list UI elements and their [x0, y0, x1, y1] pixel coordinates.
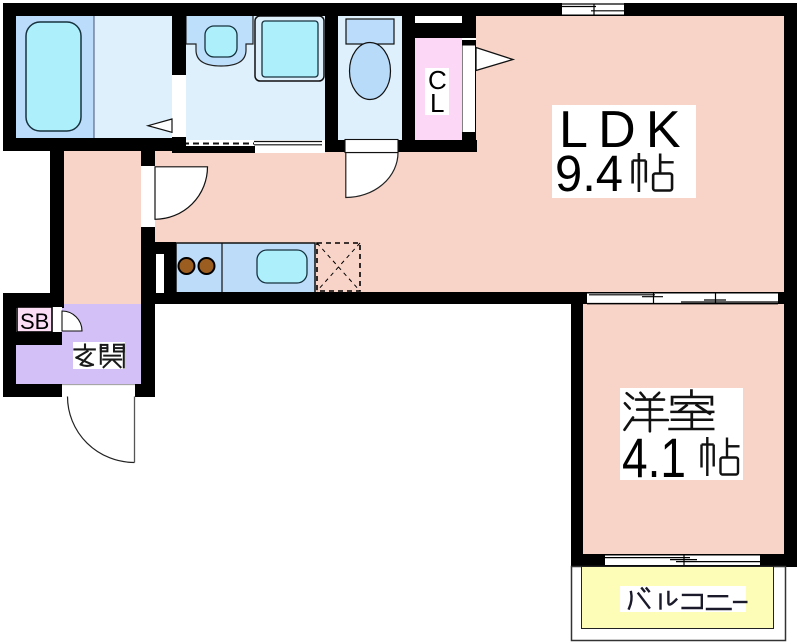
svg-text:L: L: [430, 88, 444, 118]
svg-text:4.1: 4.1: [622, 426, 686, 489]
svg-text:SB: SB: [20, 309, 49, 334]
svg-text:9.4: 9.4: [555, 145, 623, 202]
